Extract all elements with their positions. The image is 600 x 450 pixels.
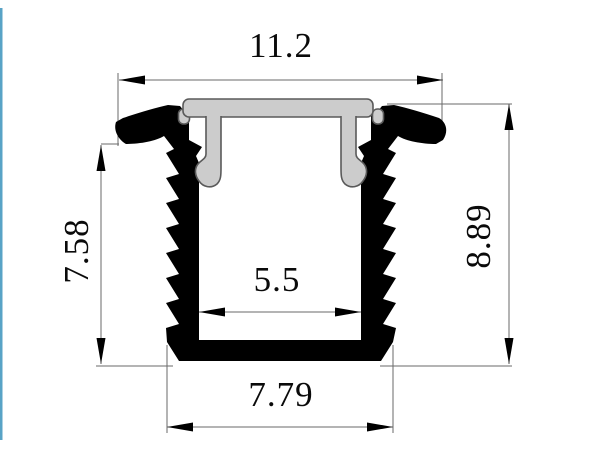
dim-bottom-width-label: 7.79	[248, 375, 313, 414]
diffuser-cover-lip-right	[373, 109, 384, 124]
arrowhead-body-height-bottom	[97, 338, 106, 364]
arrowhead-overall-height-bottom	[505, 338, 514, 364]
dim-inner-width-label: 5.5	[254, 260, 301, 299]
arrowhead-overall-height-top	[505, 104, 514, 130]
arrowhead-top-width-right	[417, 76, 443, 85]
arrowhead-body-height-top	[97, 145, 106, 171]
diffuser-cover-leg-left	[195, 116, 221, 187]
dim-overall-height-label: 8.89	[459, 203, 498, 268]
arrowhead-bottom-width-left	[167, 423, 193, 432]
technical-drawing-canvas: 11.2 7.58 8.89 5.5 7.79	[0, 0, 600, 450]
arrowhead-bottom-width-right	[367, 423, 393, 432]
dim-body-height-label: 7.58	[57, 218, 96, 283]
profile-cross-section-drawing: 11.2 7.58 8.89 5.5 7.79	[0, 0, 600, 450]
dim-top-width-label: 11.2	[249, 26, 313, 65]
arrowhead-top-width-left	[119, 76, 145, 85]
accent-border-line	[0, 8, 3, 440]
arrowhead-inner-width-right	[335, 308, 361, 317]
diffuser-cover	[179, 99, 384, 187]
profile-body	[115, 105, 446, 361]
diffuser-cover-plate	[183, 99, 373, 117]
arrowhead-inner-width-left	[199, 308, 225, 317]
